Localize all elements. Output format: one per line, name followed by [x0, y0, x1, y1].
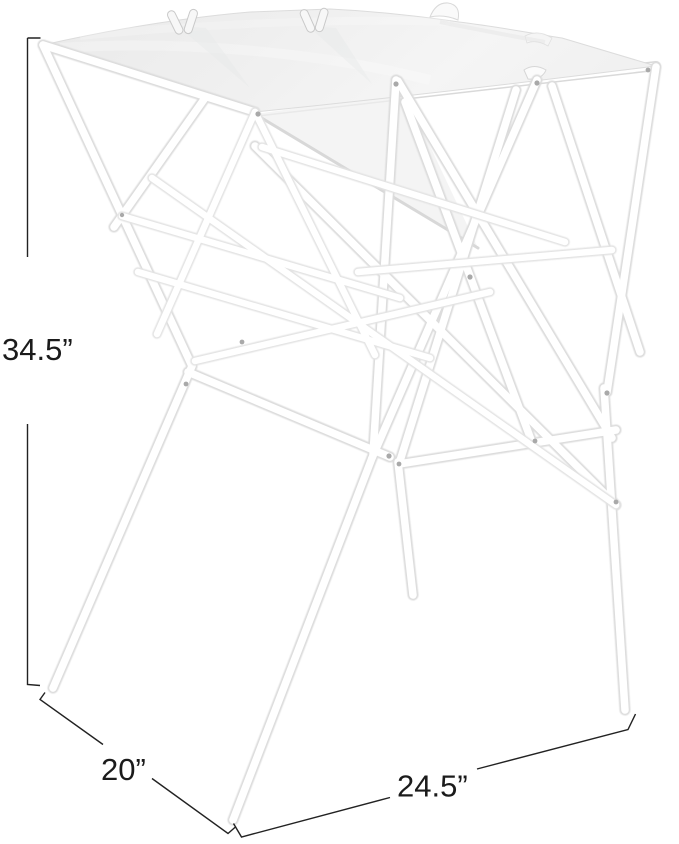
svg-text:20”: 20”: [101, 752, 146, 787]
svg-text:34.5”: 34.5”: [2, 332, 73, 367]
svg-text:24.5”: 24.5”: [397, 769, 468, 804]
